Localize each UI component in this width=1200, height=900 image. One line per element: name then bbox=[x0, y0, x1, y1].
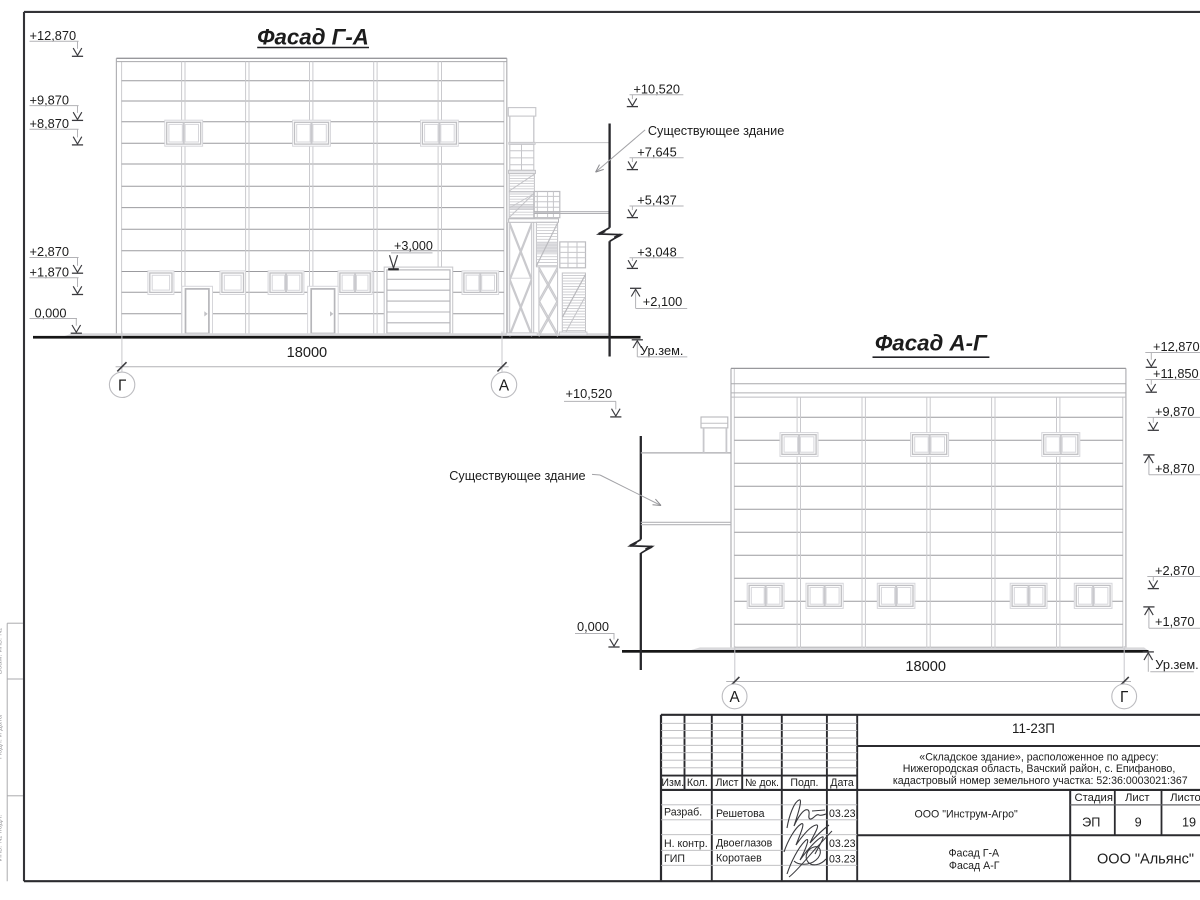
svg-text:Фасад Г-А: Фасад Г-А bbox=[949, 847, 1001, 859]
svg-text:Кол.: Кол. bbox=[687, 777, 708, 789]
svg-text:18000: 18000 bbox=[905, 659, 946, 675]
svg-text:+3,048: +3,048 bbox=[637, 244, 677, 259]
svg-text:Двоеглазов: Двоеглазов bbox=[716, 837, 773, 849]
svg-text:Ур.зем.: Ур.зем. bbox=[1155, 657, 1198, 672]
svg-text:Разраб.: Разраб. bbox=[664, 807, 702, 819]
svg-text:0,000: 0,000 bbox=[577, 619, 609, 634]
svg-text:Лист: Лист bbox=[715, 777, 738, 789]
svg-text:Коротаев: Коротаев bbox=[716, 853, 762, 865]
svg-text:Листов: Листов bbox=[1170, 792, 1200, 804]
svg-text:+2,870: +2,870 bbox=[30, 244, 70, 259]
svg-text:Изм.: Изм. bbox=[661, 777, 684, 789]
svg-text:+10,520: +10,520 bbox=[633, 81, 680, 96]
svg-text:Решетова: Решетова bbox=[716, 808, 765, 820]
svg-text:Подп. и дата: Подп. и дата bbox=[0, 714, 4, 759]
svg-text:11-23П: 11-23П bbox=[1012, 721, 1055, 736]
svg-text:Г: Г bbox=[1120, 689, 1128, 706]
svg-text:№ док.: № док. bbox=[745, 777, 779, 789]
svg-text:+11,850: +11,850 bbox=[1153, 366, 1199, 381]
svg-text:ООО "Инструм-Агро": ООО "Инструм-Агро" bbox=[915, 808, 1019, 820]
svg-text:+7,645: +7,645 bbox=[637, 144, 677, 159]
svg-text:+9,870: +9,870 bbox=[1155, 404, 1195, 419]
svg-text:А: А bbox=[499, 377, 510, 394]
svg-text:Инв. № подл.: Инв. № подл. bbox=[0, 815, 4, 862]
svg-text:+8,870: +8,870 bbox=[1155, 461, 1195, 476]
svg-text:Фасад Г-А: Фасад Г-А bbox=[257, 24, 369, 49]
svg-text:+12,870: +12,870 bbox=[1153, 339, 1200, 354]
svg-text:Существующее здание: Существующее здание bbox=[648, 124, 784, 138]
svg-text:Фасад А-Г: Фасад А-Г bbox=[875, 330, 988, 355]
svg-text:9: 9 bbox=[1135, 816, 1142, 830]
svg-text:+5,437: +5,437 bbox=[637, 193, 677, 208]
svg-text:+3,000: +3,000 bbox=[394, 239, 433, 253]
svg-text:03.23: 03.23 bbox=[829, 854, 856, 866]
svg-text:+12,870: +12,870 bbox=[30, 28, 77, 43]
svg-text:кадастровый номер земельного у: кадастровый номер земельного участка: 52… bbox=[893, 775, 1188, 787]
svg-text:«Складское здание», расположен: «Складское здание», расположенное по адр… bbox=[919, 751, 1158, 763]
svg-text:03.23: 03.23 bbox=[829, 838, 856, 850]
svg-text:ЭП: ЭП bbox=[1082, 816, 1100, 830]
svg-text:Дата: Дата bbox=[830, 777, 854, 789]
svg-text:03.23: 03.23 bbox=[829, 808, 856, 820]
svg-text:19: 19 bbox=[1182, 816, 1196, 830]
svg-text:+10,520: +10,520 bbox=[566, 386, 613, 401]
svg-text:Ур.зем.: Ур.зем. bbox=[640, 343, 683, 358]
svg-text:+9,870: +9,870 bbox=[30, 92, 70, 107]
svg-text:ООО "Альянс": ООО "Альянс" bbox=[1097, 851, 1194, 867]
svg-text:Фасад А-Г: Фасад А-Г bbox=[949, 860, 1000, 872]
svg-text:+2,100: +2,100 bbox=[643, 294, 683, 309]
svg-text:Н. контр.: Н. контр. bbox=[664, 838, 708, 850]
svg-text:ГИП: ГИП bbox=[664, 853, 685, 865]
svg-text:Лист: Лист bbox=[1125, 792, 1150, 804]
svg-text:Нижегородская область, Вачский: Нижегородская область, Вачский район, с.… bbox=[903, 763, 1176, 775]
svg-text:Стадия: Стадия bbox=[1074, 792, 1113, 804]
svg-text:+1,870: +1,870 bbox=[30, 264, 70, 279]
svg-text:18000: 18000 bbox=[287, 345, 328, 361]
svg-text:Существующее здание: Существующее здание bbox=[449, 469, 585, 483]
svg-text:+1,870: +1,870 bbox=[1155, 614, 1195, 629]
svg-text:Взам. инв. №: Взам. инв. № bbox=[0, 628, 4, 674]
svg-text:Г: Г bbox=[118, 377, 126, 394]
svg-text:А: А bbox=[729, 689, 740, 706]
svg-text:+2,870: +2,870 bbox=[1155, 563, 1195, 578]
svg-text:+8,870: +8,870 bbox=[30, 116, 70, 131]
svg-text:Подп.: Подп. bbox=[790, 777, 818, 789]
